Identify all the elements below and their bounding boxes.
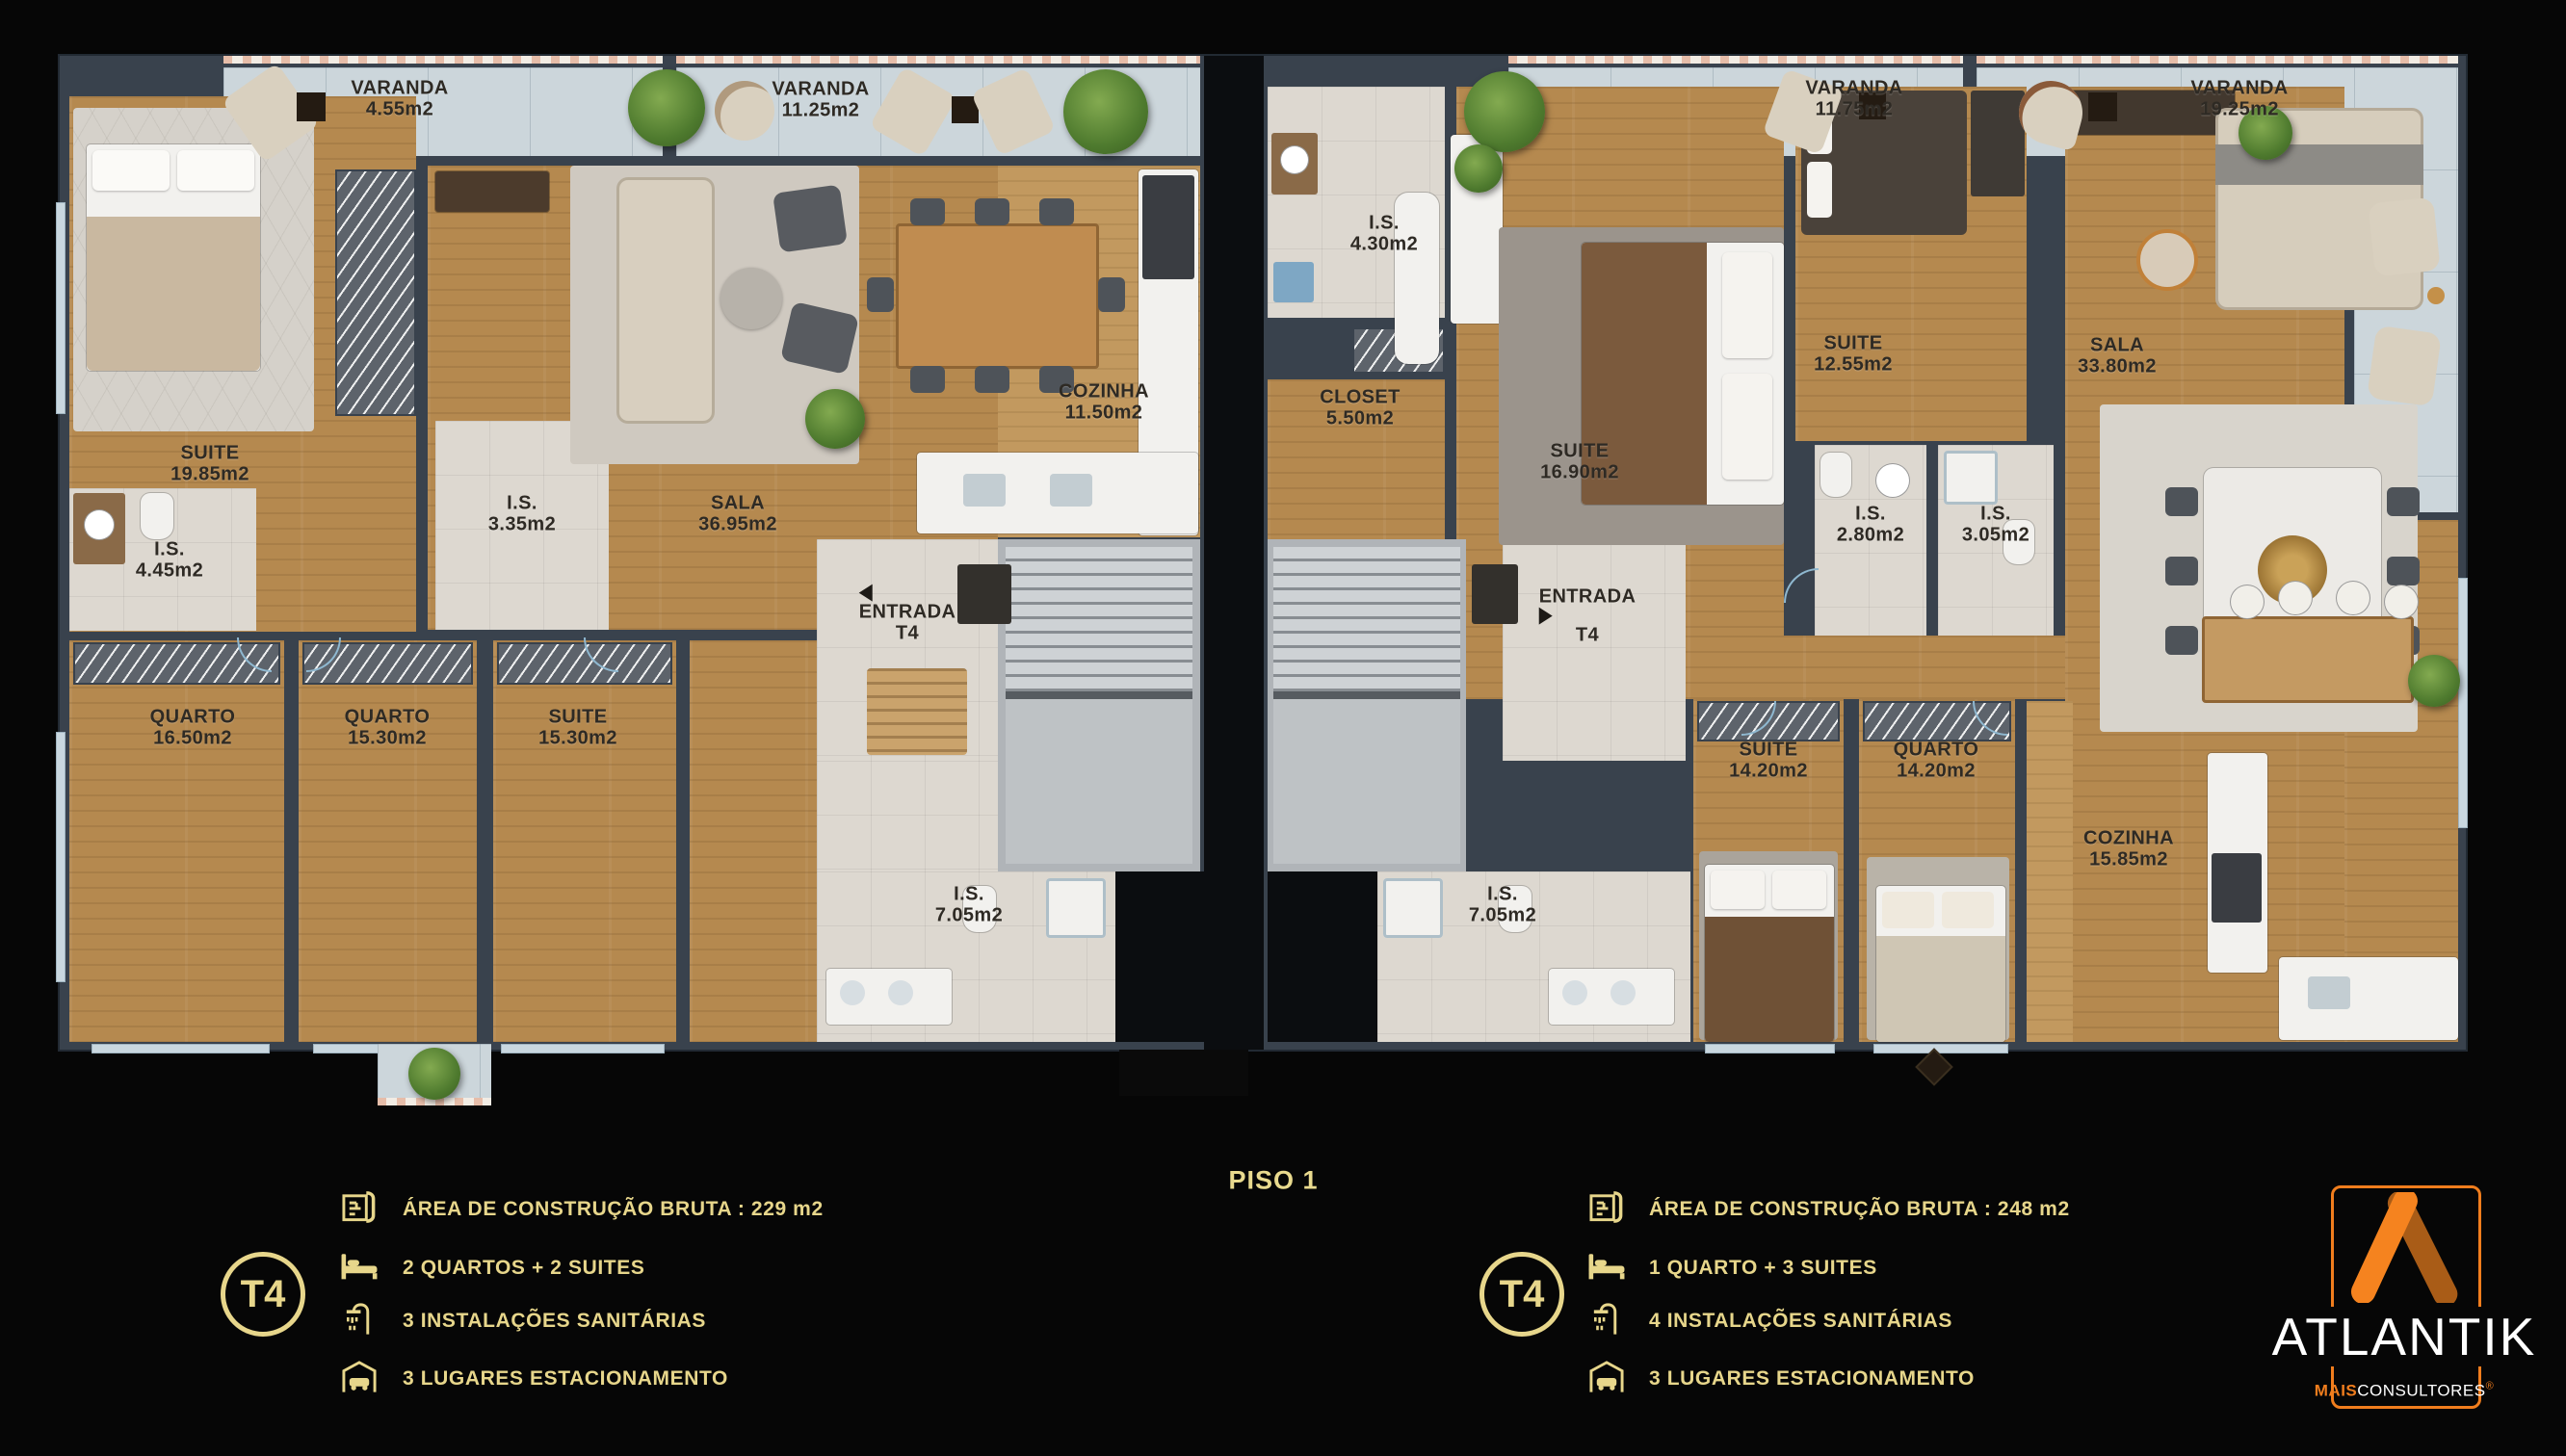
railing [223, 56, 663, 64]
label-sala-right: SALA33.80m2 [2078, 335, 2157, 378]
sink [1610, 980, 1636, 1005]
sink [963, 474, 1006, 507]
plant [805, 389, 865, 449]
sink [1050, 474, 1092, 507]
floor-plan-page: VARANDA4.55m2 VARANDA11.25m2 VARANDA11.7… [0, 0, 2566, 1456]
label-entrada-left: ENTRADA T4 [859, 585, 956, 645]
brand-name: ATLANTIK [2266, 1306, 2543, 1367]
entrance-arrow-right-icon [1539, 608, 1553, 625]
plant [408, 1048, 460, 1100]
label-sala-left: SALA36.95m2 [698, 493, 777, 536]
shower [1383, 878, 1443, 938]
round-mirror [2136, 229, 2198, 291]
label-suite-1530: SUITE15.30m2 [538, 707, 617, 750]
elevator-shaft-left [1115, 871, 1260, 1042]
label-is-445: I.S.4.45m2 [136, 539, 203, 583]
pillow [1722, 252, 1772, 358]
label-is-335: I.S.3.35m2 [488, 493, 556, 536]
sink [1876, 464, 1909, 497]
brand-sub-mark: ® [2486, 1381, 2495, 1392]
plant [2408, 655, 2460, 707]
window [92, 1044, 270, 1053]
label-varanda-1: VARANDA4.55m2 [351, 78, 448, 121]
shower-icon [343, 1301, 376, 1342]
label-quarto-1650: QUARTO16.50m2 [150, 707, 236, 750]
chair [2165, 626, 2198, 655]
chair [2385, 585, 2418, 618]
floor-title: PISO 1 [1228, 1166, 1318, 1196]
brand-sub-main: CONSULTORES [2357, 1381, 2485, 1399]
chair [975, 198, 1009, 225]
stair-landing-left [1006, 699, 1192, 864]
label-is-705-left: I.S.7.05m2 [935, 884, 1003, 927]
stairs-left [1006, 547, 1192, 691]
blueprint-icon [1588, 1190, 1625, 1230]
chair [910, 198, 945, 225]
armchair [2368, 197, 2441, 277]
chair [2231, 585, 2264, 618]
stair-landing-right [1273, 699, 1460, 864]
deco-cube-icon [1915, 1048, 1953, 1086]
sofa [616, 177, 715, 424]
wardrobe [335, 169, 416, 416]
sink [85, 510, 114, 539]
label-varanda-2: VARANDA11.25m2 [772, 79, 869, 122]
kitchen-cabinets [2279, 957, 2458, 1040]
legend-right-row-2: 1 QUARTO + 3 SUITES [1649, 1257, 1877, 1280]
toilet [141, 493, 173, 539]
planter-box [297, 92, 326, 121]
pillow [92, 150, 170, 191]
bench [867, 668, 967, 755]
shower [1046, 878, 1106, 938]
shower [1944, 451, 1998, 505]
label-is-280: I.S.2.80m2 [1837, 504, 1904, 547]
window [2458, 578, 2468, 828]
legend-right-row-3: 4 INSTALAÇÕES SANITÁRIAS [1649, 1310, 1952, 1333]
console [957, 564, 1011, 624]
cooktop [2212, 853, 2262, 923]
elevator-shaft-right [1268, 871, 1377, 1042]
legend-left-row-3: 3 INSTALAÇÕES SANITÁRIAS [403, 1310, 706, 1333]
sink [1562, 980, 1587, 1005]
blanket [1876, 936, 2005, 1042]
garage-icon [341, 1359, 378, 1400]
armchair [2367, 325, 2442, 407]
plant [1464, 71, 1545, 152]
window [1873, 1044, 2008, 1053]
pillow [1772, 871, 1826, 909]
chair [2279, 582, 2312, 614]
pillow [1942, 892, 1994, 928]
legend-right-row-4: 3 LUGARES ESTACIONAMENTO [1649, 1367, 1975, 1391]
room-entrada-right [1503, 539, 1686, 761]
lounge-chair [715, 81, 774, 141]
washer [1273, 262, 1314, 302]
window [56, 732, 65, 982]
label-cozinha-left: COZINHA11.50m2 [1059, 381, 1149, 425]
sink [840, 980, 865, 1005]
atlantik-chevron-icon [2345, 1192, 2461, 1308]
sink [1281, 146, 1308, 173]
room-suite-1530 [493, 640, 676, 1042]
blanket [87, 217, 260, 371]
room-cozinha-right-ext [2027, 701, 2073, 1042]
blanket [1705, 917, 1834, 1042]
shower-icon [1590, 1301, 1623, 1342]
type-badge-left: T4 [221, 1252, 305, 1337]
window [501, 1044, 665, 1053]
label-varanda-3: VARANDA11.75m2 [1805, 78, 1902, 121]
pillow [1882, 892, 1934, 928]
toilet [1820, 453, 1851, 497]
plant [1063, 69, 1148, 154]
chair [2165, 557, 2198, 585]
desk [1971, 91, 2025, 196]
chair [2387, 487, 2420, 516]
pillow [1807, 162, 1832, 218]
blueprint-icon [341, 1190, 378, 1230]
chair [2387, 557, 2420, 585]
label-quarto-1530: QUARTO15.30m2 [345, 707, 431, 750]
plant [628, 69, 705, 146]
bar-table [2202, 616, 2414, 703]
entrance-arrow-left-icon [859, 585, 873, 602]
chair [867, 277, 894, 312]
coffee-table [720, 268, 782, 329]
railing [1977, 56, 2458, 64]
label-suite-1420: SUITE14.20m2 [1729, 740, 1808, 783]
pillow [1711, 871, 1765, 909]
label-suite-1985: SUITE19.85m2 [170, 443, 249, 486]
suite-corridor-left [690, 640, 817, 1042]
label-suite-1690: SUITE16.90m2 [1540, 441, 1619, 484]
window [1705, 1044, 1835, 1053]
hall-left [817, 761, 998, 871]
stair-rail-left [1006, 691, 1192, 699]
pillow [1722, 374, 1772, 480]
console [1472, 564, 1518, 624]
brand-sub-accent: MAIS [2315, 1381, 2358, 1399]
dining-table [896, 223, 1099, 369]
room-quarto-1530 [299, 640, 477, 1042]
sink [888, 980, 913, 1005]
legend-right-row-1: ÁREA DE CONSTRUÇÃO BRUTA : 248 m2 [1649, 1198, 2070, 1221]
legend-left-row-2: 2 QUARTOS + 2 SUITES [403, 1257, 644, 1280]
railing [1508, 56, 1963, 64]
window [56, 202, 65, 414]
type-badge-right: T4 [1479, 1252, 1564, 1337]
bed-icon [340, 1251, 379, 1287]
floor-lamp [2427, 287, 2445, 304]
brand-subtitle: MAISCONSULTORES® [2315, 1381, 2494, 1401]
sink [2308, 976, 2350, 1009]
chair [2165, 487, 2198, 516]
bed-icon [1587, 1251, 1626, 1287]
chair [910, 366, 945, 393]
garage-icon [1588, 1359, 1625, 1400]
sideboard [435, 171, 549, 212]
pillow [177, 150, 254, 191]
label-is-305: I.S.3.05m2 [1962, 504, 2029, 547]
armchair [772, 184, 848, 252]
label-suite-1255: SUITE12.55m2 [1814, 333, 1893, 377]
label-quarto-1420: QUARTO14.20m2 [1894, 740, 1979, 783]
cooktop [1142, 175, 1194, 279]
railing [676, 56, 1200, 64]
chair [2337, 582, 2370, 614]
stair-rail-right [1273, 691, 1460, 699]
stairs-right [1273, 547, 1460, 691]
planter-box [2088, 92, 2117, 121]
chair [1098, 277, 1125, 312]
plant [1454, 144, 1503, 193]
label-cozinha-right: COZINHA15.85m2 [2083, 828, 2174, 871]
chair [975, 366, 1009, 393]
label-entrada-right: ENTRADA T4 [1539, 586, 1636, 647]
label-is-705-right: I.S.7.05m2 [1469, 884, 1536, 927]
legend-left-row-4: 3 LUGARES ESTACIONAMENTO [403, 1367, 728, 1391]
legend-left-row-1: ÁREA DE CONSTRUÇÃO BRUTA : 229 m2 [403, 1198, 824, 1221]
chair [1039, 198, 1074, 225]
label-varanda-4: VARANDA19.25m2 [2190, 78, 2288, 121]
label-is-430: I.S.4.30m2 [1350, 213, 1418, 256]
room-quarto-1650 [69, 640, 284, 1042]
entry-porch [1119, 1050, 1248, 1096]
label-closet: CLOSET5.50m2 [1320, 387, 1401, 430]
